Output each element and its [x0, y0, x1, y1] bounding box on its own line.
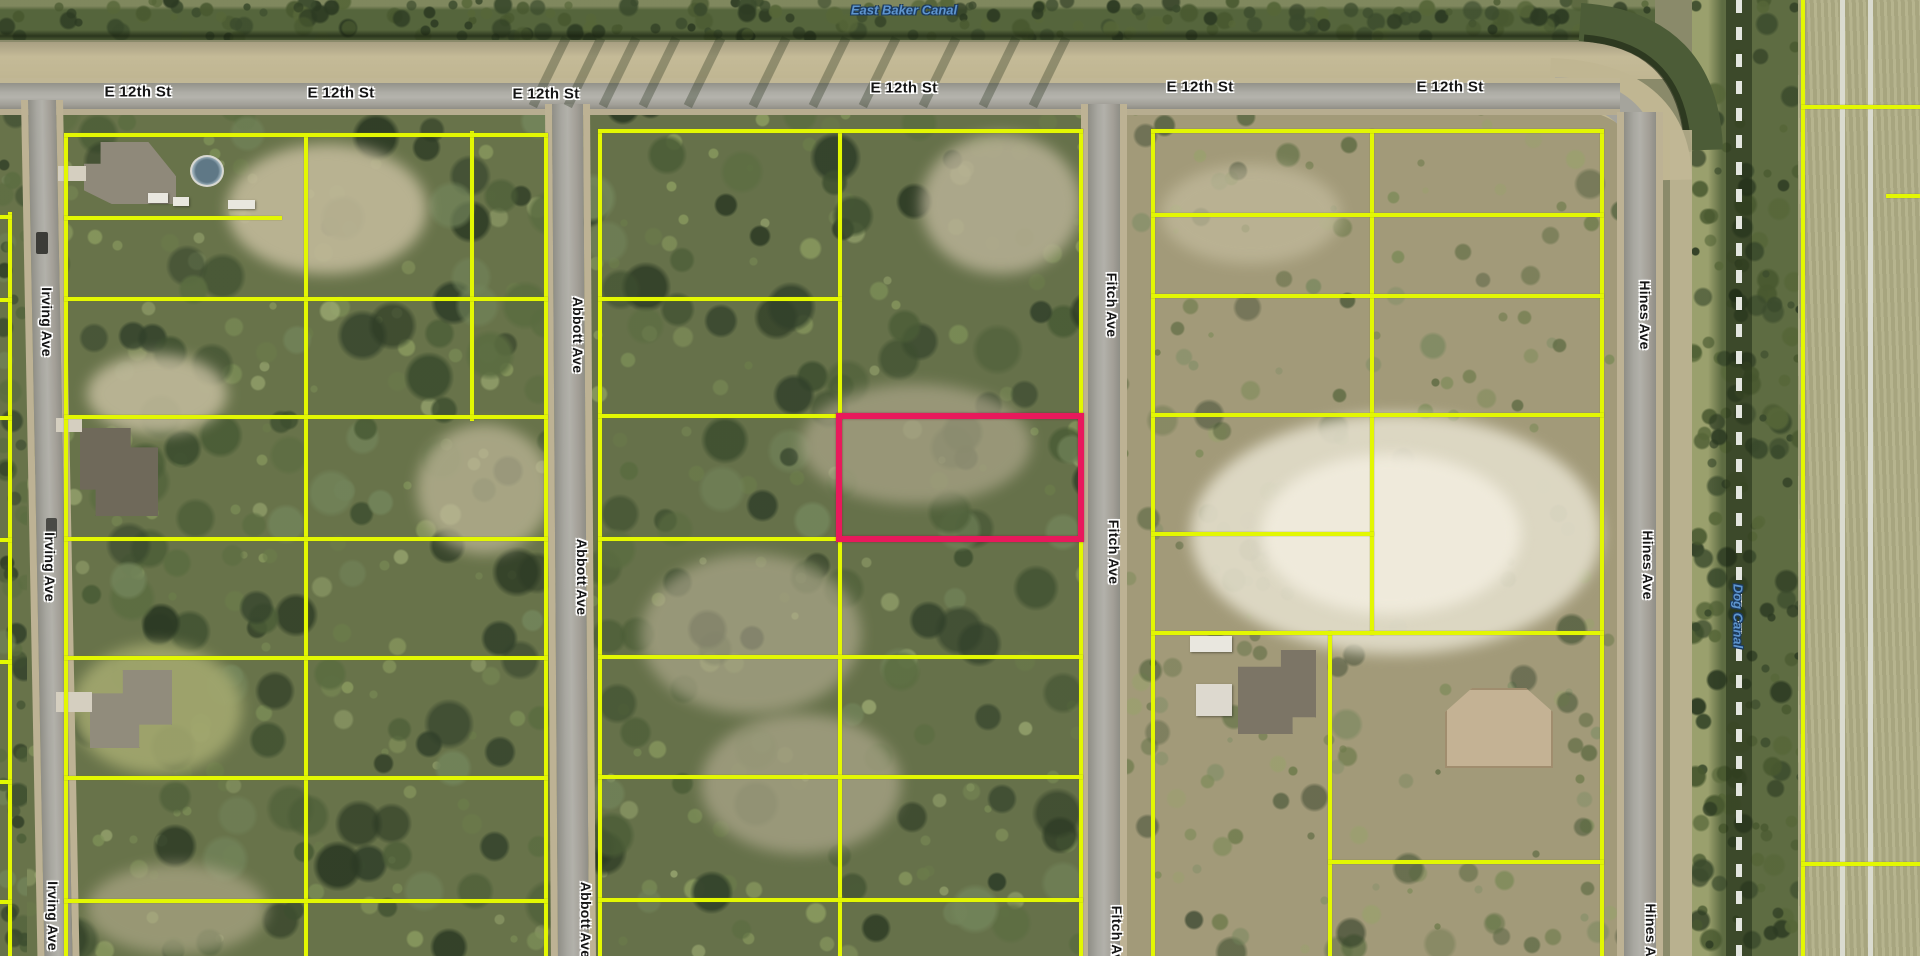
house	[1445, 688, 1553, 768]
parcel-line	[64, 415, 548, 419]
shed	[1196, 684, 1232, 716]
parcel-line	[64, 216, 282, 220]
sand-patch	[701, 714, 901, 854]
parcel-line	[598, 297, 842, 301]
parcel-line	[64, 133, 548, 137]
parcel-line	[598, 655, 1083, 659]
sand-patch	[87, 864, 267, 954]
dog-canal-dashed-line	[1736, 0, 1742, 956]
street-label: E 12th St	[871, 80, 938, 97]
parcel-line	[1151, 413, 1604, 417]
water-label: Dog Canal	[1731, 584, 1746, 648]
canal-treeline-band	[0, 0, 1655, 40]
sand-patch	[921, 134, 1081, 274]
parcel-line	[838, 129, 842, 956]
pool	[190, 155, 224, 187]
parcel-line	[1079, 129, 1083, 956]
parcel-line	[598, 129, 1083, 133]
driveway	[58, 166, 86, 181]
parcel-line	[0, 215, 12, 219]
parcel-line	[64, 297, 548, 301]
water-label: East Baker Canal	[851, 3, 957, 18]
driveway	[56, 692, 92, 712]
pasture-track-line	[1840, 0, 1845, 956]
parcel-line	[470, 131, 474, 421]
parcel-line	[1151, 129, 1155, 956]
parcel-line	[598, 898, 1083, 902]
parcel-line	[598, 414, 842, 418]
parcel-line	[64, 537, 548, 541]
street-label: Hines Ave	[1637, 280, 1653, 349]
parcel-line	[544, 133, 548, 956]
parcel-line	[1328, 631, 1332, 956]
pasture-track-line	[1868, 0, 1873, 956]
parcel-line	[1801, 0, 1805, 956]
aerial-map[interactable]: East Baker CanalE 12th StE 12th StE 12th…	[0, 0, 1920, 956]
east-pasture-strip	[1798, 0, 1920, 956]
trailer	[228, 200, 255, 209]
street-label: Fitch Ave	[1106, 520, 1122, 585]
road-abbott-ave	[545, 104, 596, 956]
car-on-road	[36, 232, 48, 254]
parcel-line	[1151, 532, 1374, 536]
street-label: Irving Ave	[39, 287, 55, 357]
sand-patch	[87, 354, 227, 434]
vehicle	[148, 193, 168, 203]
parcel-line	[1328, 860, 1604, 864]
road-e-12th-st	[0, 78, 1620, 115]
sand-patch	[227, 144, 427, 274]
street-label: E 12th St	[1167, 79, 1234, 96]
highlighted-parcel-outline	[836, 413, 1084, 542]
parcel-line	[1151, 294, 1604, 298]
parcel-line	[1151, 129, 1604, 133]
parcel-line	[0, 780, 12, 784]
street-label: E 12th St	[308, 85, 375, 102]
parcel-line	[1801, 105, 1920, 109]
parcel-line	[1886, 194, 1920, 198]
parcel-line	[64, 899, 548, 903]
parcel-line	[1370, 129, 1374, 635]
truck	[1190, 636, 1232, 652]
parcel-line	[0, 660, 12, 664]
parcel-line	[1151, 631, 1604, 635]
parcel-line	[0, 298, 12, 302]
street-label: E 12th St	[513, 86, 580, 103]
parcel-line	[598, 775, 1083, 779]
canal-shadow-edge	[0, 30, 1655, 40]
parcel-line	[0, 900, 12, 904]
parcel-line	[1151, 213, 1604, 217]
sand-patch	[641, 554, 861, 714]
street-label: Fitch Ave	[1109, 906, 1125, 956]
street-label: E 12th St	[1417, 79, 1484, 96]
street-label: E 12th St	[105, 84, 172, 101]
sand-patch	[417, 424, 551, 554]
hines-east-shoulder	[1670, 130, 1692, 956]
parcel-line	[304, 133, 308, 956]
vehicle	[173, 197, 189, 206]
parcel-line	[598, 129, 602, 956]
street-label: Fitch Ave	[1104, 273, 1120, 338]
parcel-line	[8, 212, 12, 956]
street-label: Irving Ave	[45, 881, 61, 951]
street-label: Hines Ave	[1640, 530, 1656, 599]
parcel-line	[64, 133, 68, 956]
parcel-line	[64, 656, 548, 660]
parcel-line	[0, 416, 12, 420]
street-label: Abbott Ave	[570, 297, 586, 374]
driveway	[56, 418, 82, 432]
parcel-line	[0, 538, 12, 542]
parcel-line	[64, 776, 548, 780]
parcel-line	[598, 537, 842, 541]
street-label: Hines Ave	[1643, 903, 1659, 956]
parcel-line	[1801, 862, 1920, 866]
street-label: Abbott Ave	[578, 882, 594, 956]
street-label: Abbott Ave	[574, 539, 590, 616]
street-label: Irving Ave	[42, 532, 58, 602]
parcel-line	[1600, 129, 1604, 956]
